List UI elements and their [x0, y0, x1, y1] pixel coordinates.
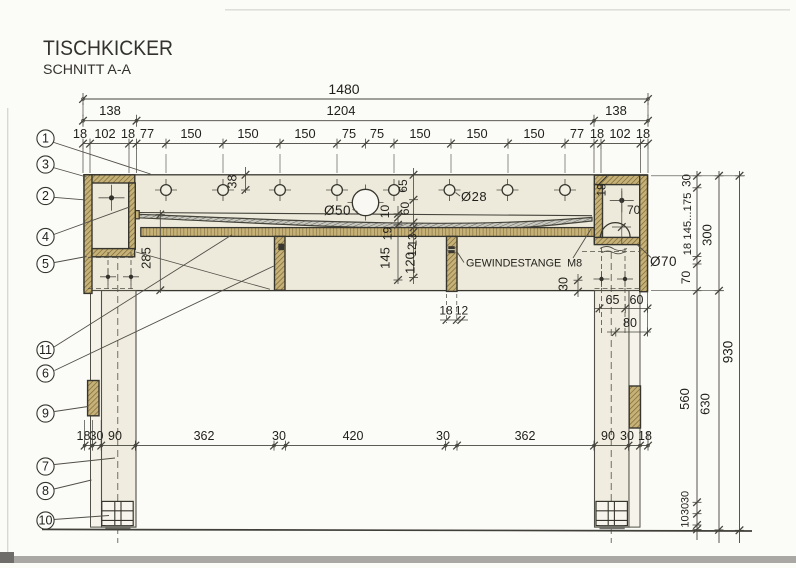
- svg-text:150: 150: [237, 126, 258, 141]
- svg-text:1204: 1204: [327, 103, 356, 118]
- svg-text:145: 145: [378, 247, 393, 269]
- svg-text:3: 3: [42, 158, 49, 172]
- svg-text:70: 70: [627, 203, 641, 217]
- svg-text:102: 102: [94, 126, 115, 141]
- svg-text:30: 30: [680, 491, 692, 503]
- svg-text:18: 18: [636, 126, 650, 141]
- svg-text:10: 10: [378, 205, 392, 219]
- svg-text:362: 362: [194, 429, 215, 443]
- svg-text:10: 10: [39, 514, 53, 528]
- svg-text:Ø50: Ø50: [324, 203, 351, 218]
- svg-text:75: 75: [370, 126, 384, 141]
- svg-text:19: 19: [381, 227, 395, 241]
- svg-text:362: 362: [515, 429, 536, 443]
- svg-text:18: 18: [77, 429, 91, 443]
- svg-text:GEWINDESTANGE M8: GEWINDESTANGE M8: [466, 258, 582, 270]
- svg-text:18: 18: [439, 304, 453, 318]
- svg-text:138: 138: [99, 103, 121, 118]
- svg-text:6: 6: [42, 367, 49, 381]
- svg-text:18 145...175: 18 145...175: [682, 193, 694, 256]
- svg-text:TISCHKICKER: TISCHKICKER: [43, 37, 173, 60]
- svg-text:560: 560: [677, 388, 692, 410]
- svg-text:102: 102: [609, 126, 630, 141]
- svg-text:10: 10: [680, 515, 692, 527]
- svg-text:1480: 1480: [328, 81, 359, 97]
- svg-text:65: 65: [606, 293, 620, 307]
- svg-text:Ø28: Ø28: [461, 189, 487, 204]
- svg-text:630: 630: [698, 393, 713, 415]
- svg-text:5: 5: [42, 257, 49, 271]
- svg-text:Ø70: Ø70: [650, 254, 677, 269]
- svg-text:70: 70: [679, 271, 693, 285]
- svg-text:300: 300: [700, 224, 715, 246]
- svg-text:1: 1: [42, 132, 49, 146]
- svg-text:60: 60: [398, 202, 412, 216]
- svg-text:90: 90: [601, 429, 615, 443]
- svg-text:4: 4: [42, 230, 49, 244]
- svg-text:77: 77: [570, 126, 584, 141]
- svg-text:120: 120: [403, 252, 418, 274]
- svg-text:12: 12: [455, 304, 469, 318]
- svg-text:18: 18: [590, 126, 604, 141]
- svg-text:30: 30: [557, 277, 571, 291]
- svg-text:30: 30: [272, 429, 286, 443]
- svg-text:9: 9: [42, 407, 49, 421]
- svg-text:18: 18: [597, 184, 609, 197]
- svg-text:30: 30: [620, 429, 634, 443]
- svg-text:150: 150: [466, 126, 487, 141]
- svg-text:150: 150: [180, 126, 201, 141]
- svg-text:75: 75: [342, 126, 356, 141]
- svg-text:150: 150: [409, 126, 430, 141]
- svg-text:65: 65: [396, 179, 410, 193]
- svg-text:30: 30: [436, 429, 450, 443]
- svg-text:2: 2: [42, 189, 49, 203]
- svg-text:77: 77: [140, 126, 154, 141]
- svg-text:285: 285: [139, 247, 154, 269]
- svg-text:38: 38: [226, 175, 240, 189]
- svg-text:80: 80: [623, 316, 637, 330]
- svg-text:11: 11: [39, 343, 52, 357]
- svg-text:60: 60: [630, 293, 644, 307]
- svg-text:18: 18: [73, 126, 87, 141]
- svg-text:138: 138: [605, 103, 627, 118]
- svg-text:8: 8: [42, 484, 49, 498]
- svg-text:420: 420: [343, 429, 364, 443]
- svg-text:SCHNITT A-A: SCHNITT A-A: [43, 62, 131, 77]
- svg-text:150: 150: [523, 126, 544, 141]
- svg-text:930: 930: [721, 341, 736, 364]
- svg-text:150: 150: [294, 126, 315, 141]
- svg-text:30: 30: [680, 503, 692, 515]
- svg-text:18: 18: [121, 126, 135, 141]
- svg-text:90: 90: [108, 429, 122, 443]
- svg-text:7: 7: [42, 460, 49, 474]
